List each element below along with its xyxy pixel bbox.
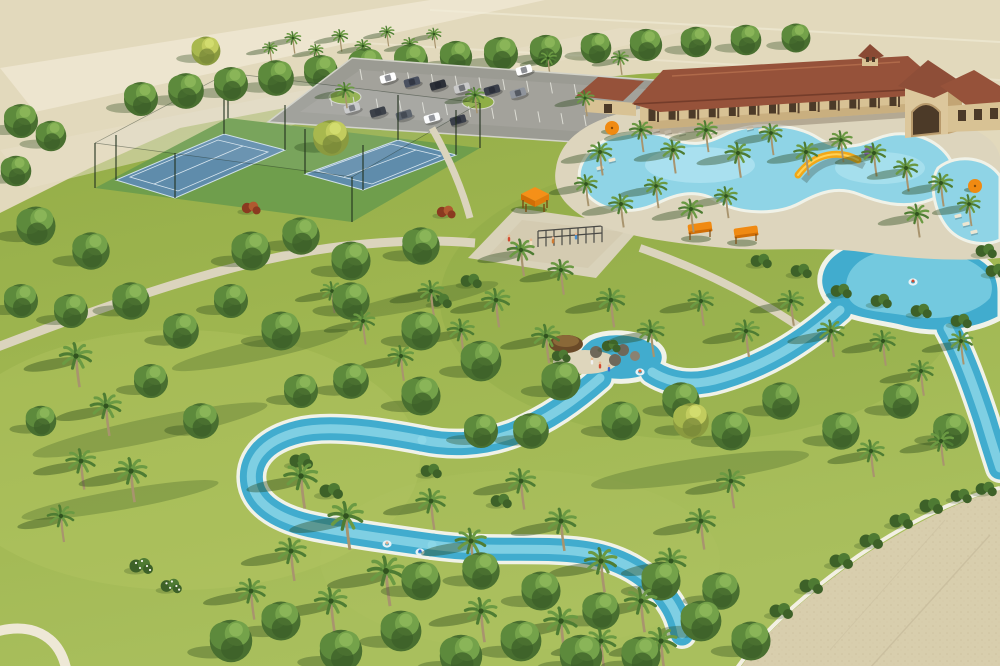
person: [591, 358, 594, 365]
entry-arch: [912, 104, 940, 136]
person: [599, 362, 602, 369]
person: [575, 233, 578, 240]
round-tree: [0, 156, 31, 187]
grotto-rock: [609, 354, 621, 366]
person: [508, 235, 511, 242]
rendering-canvas: [0, 0, 1000, 666]
clubhouse-opening: [649, 109, 656, 121]
river-tube-float: [908, 278, 917, 285]
grotto-rock: [630, 351, 640, 361]
river-tube-float: [635, 368, 644, 375]
person: [552, 237, 555, 244]
rendering-stage: Aerial rendering of a resort-style commu…: [0, 0, 1000, 666]
person: [608, 365, 611, 372]
person: [530, 239, 533, 246]
river-tube-float: [382, 540, 391, 547]
